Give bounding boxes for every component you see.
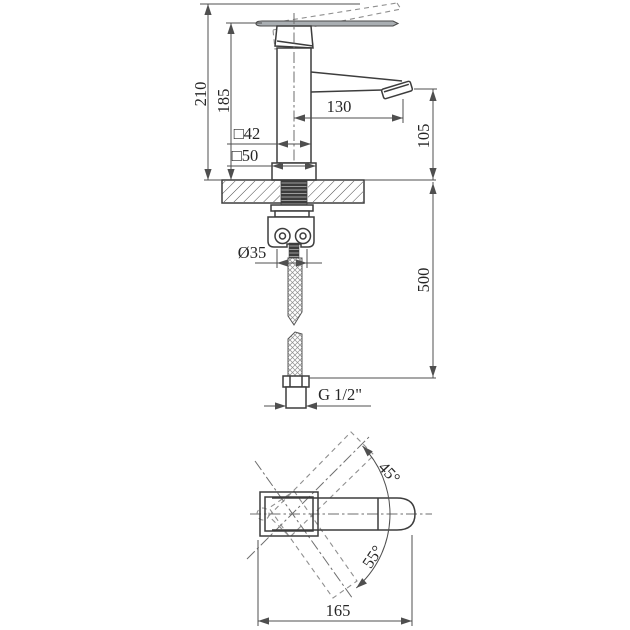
- dim-body-section-label: □42: [234, 124, 260, 143]
- dim-overall-width-label: 165: [326, 601, 351, 620]
- dim-lever-height-label: 185: [214, 89, 233, 114]
- dim-base-section-label: □50: [232, 146, 258, 165]
- hose-hex-nut: [283, 376, 309, 387]
- faucet-spout: [311, 72, 413, 99]
- swivel-down-angle-label: 55°: [358, 542, 387, 572]
- dim-overall-width: 165: [258, 535, 412, 626]
- hose-connector: [286, 387, 306, 408]
- top-view: 45° 55° 165: [247, 432, 432, 626]
- technical-drawing-canvas: 210 185 130 105: [0, 0, 630, 630]
- dim-hose-length-label: 500: [414, 268, 433, 293]
- dim-thread-label: G 1/2": [318, 385, 362, 404]
- mounting-collar: [271, 205, 313, 217]
- dim-hose-length: 500: [414, 182, 437, 378]
- aerator: [381, 81, 413, 99]
- supply-hose: [288, 258, 302, 376]
- threaded-shank: [281, 180, 307, 207]
- dim-spout-reach-label: 130: [327, 97, 352, 116]
- front-view: 210 185 130 105: [191, 3, 437, 410]
- countertop: [204, 180, 436, 203]
- dim-spout-height-label: 105: [414, 124, 433, 149]
- dim-spout-height: 105: [414, 89, 437, 180]
- dim-mounting-hole-label: Ø35: [238, 243, 266, 262]
- dim-total-height-label: 210: [191, 82, 210, 107]
- swivel-up-angle-label: 45°: [375, 458, 405, 488]
- dim-thread: G 1/2": [264, 385, 371, 410]
